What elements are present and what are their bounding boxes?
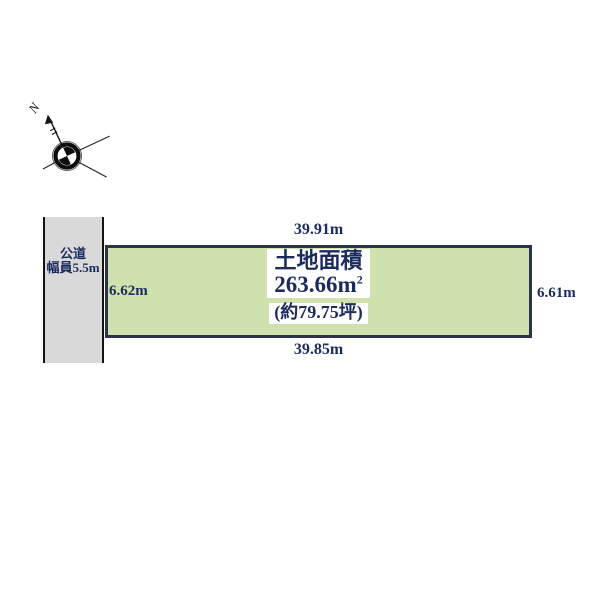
area-title: 土地面積 [274,249,362,273]
area-card: 土地面積 263.66m2 [267,249,369,298]
area-tsubo: (約79.75坪) [269,303,368,324]
north-compass-icon: N [22,100,112,190]
dim-bottom-label: 39.85m [105,341,532,359]
area-value-sup: 2 [357,272,363,286]
road-label-line2: 幅員5.5m [41,261,105,275]
land-plot-diagram: N 公道 幅員5.5m 39.91m 39.85m 6.62m 6.61m 土地… [0,0,600,600]
area-value-number: 263.66m [274,272,356,297]
north-label: N [25,100,44,117]
area-value: 263.66m2 [274,273,362,296]
road-strip [43,217,104,363]
dim-right-label: 6.61m [537,285,576,302]
area-text-stack: 土地面積 263.66m2 (約79.75坪) [105,249,532,324]
dim-top-label: 39.91m [105,221,532,239]
road-label-line1: 公道 [41,247,105,261]
north-arrow-head [45,115,53,124]
road-label: 公道 幅員5.5m [41,247,105,275]
